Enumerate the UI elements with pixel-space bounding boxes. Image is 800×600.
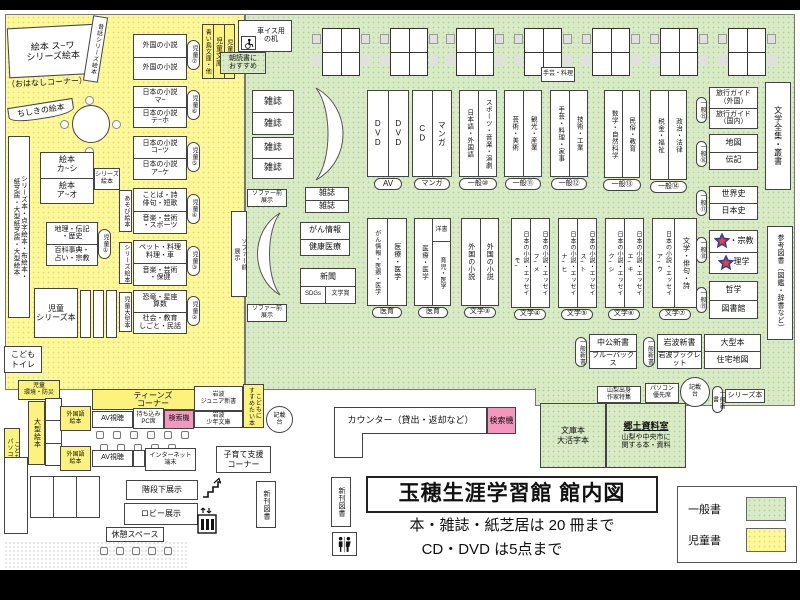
chair (113, 431, 121, 439)
sdgs-label: SDGs (301, 287, 326, 304)
table-cell (53, 477, 76, 517)
sofa-front-display-label: ソファー前 展示 (247, 304, 287, 322)
kids-shelf-jido3: ペット・料理 料理・車 音楽・芸術 ・保健 (133, 240, 187, 286)
counter: カウンター（貸出・返却など） (334, 407, 487, 434)
sofa-front-display-label: ソファー前 展示 (247, 189, 287, 207)
shelf-col: 日本の小説・エッセイ エ~キ (624, 219, 643, 307)
shelf-medical-2: 医療・医学 洋書 育児・医学 (414, 218, 451, 306)
writing-stand: 記載 台 (266, 406, 293, 433)
magazine-shelf: 雑誌 雑誌 (252, 90, 294, 135)
iwanami-shonen-bunko-shelf: 岩波 少年文庫 (194, 411, 243, 428)
chair (147, 431, 155, 439)
literary-prize-label: 文学賞 (326, 287, 355, 304)
ehon-shelf: 絵本 カ~シ 絵本 ア~オ (40, 152, 94, 204)
counter-leg (334, 433, 363, 458)
elevator-icon (197, 507, 219, 534)
shelf-tag: 文学③ (464, 307, 496, 318)
shelf-col: 医療・医学 (387, 219, 407, 305)
iwanami-junior-shinsho-shelf: 岩波 ジュニア新書 (194, 386, 243, 411)
magazine-shelf: 雑誌 雑誌 (305, 187, 349, 213)
shelf-col: スポーツ・音楽・演劇 (478, 91, 497, 176)
kids-shelf-tag: 児童② (187, 296, 200, 326)
shelf-cell (46, 420, 61, 442)
shelf-tag: 文学⑦ (659, 309, 691, 320)
yamanashi-authors-label: 山梨出身 作家特集 (597, 386, 641, 403)
shelf-row: 日本の小説 ア~ケ (134, 158, 186, 180)
shelf-tag: マンガ (414, 178, 450, 190)
shelf-col: 日本語・外国語 (460, 91, 478, 176)
magazine-label: 雑誌 (253, 112, 293, 134)
shelf-col: 日本の小説・エッセイ モ~ (512, 219, 530, 307)
shelf-tag: 医育 (372, 307, 402, 318)
table-cell (31, 477, 53, 517)
crescent-sofa (308, 86, 350, 182)
shelf-row: 岩波ブックレット (658, 351, 701, 368)
av-viewing-label: AV視聴 (92, 411, 133, 428)
kids-shelf-jido5: 日本の小説 コ~ツ 日本の小説 ア~ケ (133, 136, 187, 180)
study-table (728, 28, 766, 76)
foreign-picture-books-label: 外国語 絵本 (60, 406, 91, 431)
magazine-label: 雑誌 (253, 91, 293, 112)
shelf-cd-manga: CD マンガ (412, 90, 452, 177)
shelf-literature-3: 外国の小説 外国の小説 (461, 218, 499, 306)
shelf-col: DVD (368, 91, 388, 176)
kids-series-shelf: 児童 シリーズ本 (34, 288, 78, 338)
shelf-tag: 一般⑱ (696, 237, 707, 263)
lobby-display: ロビー展示 (124, 503, 198, 525)
shelf-tag: 一般新書 (712, 386, 723, 413)
shelf-row: 百科事典・ 占い・宗教 (47, 244, 97, 266)
kids-shelf-jido7: 外国の小説 外国の小説 (133, 34, 187, 80)
western-books-label: 洋書 (433, 219, 450, 242)
shelf-tag: 一般⑭ (650, 181, 687, 193)
shelf-medical-1: がん情報・医療・医学 医療・医学 (367, 218, 407, 306)
star-icon (718, 255, 734, 271)
magazine-label: 雑誌 (253, 158, 293, 179)
health-medical-label: 健康医療 (301, 239, 349, 256)
internet-terminal-label: インターネット 端末 (145, 448, 196, 471)
shelf-history: 世界史 日本史 (709, 186, 758, 220)
new-books-shelf: 新刊図書 (331, 477, 351, 527)
shelf-tag: AV (374, 178, 402, 190)
craft-cooking-note: 手芸・料理 (541, 67, 575, 82)
magazine-label: 雑誌 (253, 138, 293, 158)
shelf-row: 地理・伝記 ・歴史 (47, 223, 97, 244)
shelf-row: 図書館 (710, 300, 757, 319)
shelf-philosophy-library: 哲学 図書館 (709, 281, 758, 319)
shelf-literature-7: 日本の小説・エッセイ ア~ウ 文学・俳句・詩 (652, 218, 697, 308)
newspaper-shelf: 新聞 SDGs 文学賞 (300, 268, 356, 304)
shelf-religion-psychology: ・宗教 理学 (709, 230, 758, 274)
shelf-col: 日本の小説・エッセイ ア~ウ (653, 219, 674, 307)
under-stairs-display: 階段下展示 (126, 480, 198, 500)
shelf-col: 文学・俳句・詩 (674, 219, 696, 307)
shelf-row: 日本の小説 テ~ホ (134, 107, 186, 128)
wheelchair-icon (241, 36, 256, 50)
bottom-black-bar (0, 570, 800, 600)
chair (112, 120, 121, 129)
shelf-iwanami-shinsho: 岩波新書 岩波ブックレット (657, 334, 702, 369)
shelf-col: 民俗・教育 (622, 91, 640, 177)
kids-toilet-label: こども トイレ (4, 346, 42, 373)
shelf-row: ペット・料理 料理・車 (134, 241, 186, 263)
literature-complete-works-wall: 文学全集・叢書 (765, 82, 791, 190)
shelf-cell (46, 443, 61, 465)
shelf-general-13: 数学・自然科学 民俗・教育 (604, 90, 640, 178)
chair (148, 547, 156, 555)
kids-shelf-side-label: あそび絵本 (119, 190, 132, 232)
magazine-shelf: 雑誌 雑誌 (252, 137, 294, 179)
kids-shelf-jido1: 地理・伝記 ・歴史 百科事典・ 占い・宗教 (46, 222, 98, 266)
star-icon (714, 233, 730, 249)
shelf-row-starred: ・宗教 (710, 231, 757, 252)
shelf-row: 地図 (710, 135, 757, 152)
byod-pc-seat-label: 持ち込み PC席 (133, 408, 164, 429)
loan-limit-note: 本・雑誌・紙芝居は 20 冊まで (366, 515, 658, 537)
shelf-col: 日本の小説・エッセイ ナ~ヒ (559, 219, 577, 307)
local-materials-room-desc: 山梨や中央市に 関する本・資料 (622, 434, 671, 450)
map-title: 玉穂生涯学習館 館内図 (366, 476, 658, 513)
shelf-tag: 医育 (418, 307, 448, 318)
shelf-travel-guide: 旅行ガイド （外国） 旅行ガイド （国内） (709, 87, 758, 129)
shelf-row: 恐竜・星座 算数 (134, 291, 186, 312)
stairs-icon (202, 477, 222, 499)
shelf-row: 音楽・芸術 ・保健 (134, 263, 186, 286)
shelf-large-books: 大型本 住宅地図 (704, 334, 761, 369)
search-terminal: 検索機 (164, 410, 194, 429)
shelf-col: 数学・自然科学 (605, 91, 622, 177)
chair (132, 547, 140, 555)
series-ehon-label: シリーズ絵本 (26, 50, 80, 63)
shelf-row: 大型本 (705, 335, 760, 351)
chair (96, 431, 104, 439)
shelf-row: 日本の小説 マ~ (134, 87, 186, 107)
study-table (660, 28, 698, 76)
kids-shelf-tag: 児童① (98, 229, 111, 259)
pc-priority-se at-label: パソコン 優先席 (645, 383, 679, 403)
shelf-row: 日本史 (710, 203, 757, 220)
shelf-cell (46, 399, 61, 420)
shelf-tag: 一般新書 (643, 337, 655, 367)
shelf-row-text: ・宗教 (730, 237, 754, 246)
kids-shelf-tag: 児童⑥ (187, 90, 200, 120)
shelf-col: 観光・産業 (523, 91, 542, 176)
table-cell (76, 477, 99, 517)
series-books-label: シリーズ本 (725, 389, 765, 403)
legend-general-label: 一般書 (688, 501, 721, 517)
chair (116, 547, 124, 555)
study-table (592, 28, 630, 76)
crescent-sofa (248, 211, 286, 297)
chair (130, 431, 138, 439)
shelf-tag: 一般⑬ (603, 179, 641, 191)
kids-shelf-tag: 児童⑤ (187, 142, 200, 172)
shelf-col: 外国の小説 (480, 219, 499, 305)
cd-dvd-limit-note: CD・DVD は5点まで (346, 539, 638, 561)
shelf-row: 世界史 (710, 187, 757, 203)
newspaper-shelf-row2: SDGs 文学賞 (301, 286, 355, 304)
shelf-col: 日本の小説・エッセイ フ~メ (530, 219, 549, 307)
shelf-row: 岩波新書 (658, 335, 701, 351)
cancer-info-shelf: がん情報 健康医療 (300, 222, 350, 256)
kids-shelf-tag: 児童③ (187, 246, 200, 276)
pillar (93, 290, 104, 338)
shelf-col: 政治・法律 (668, 91, 686, 179)
series-ehon-side-label: シリーズ 絵本 (94, 168, 120, 190)
large-picture-books-shelf: 大型絵本 (28, 401, 45, 465)
shelf-col: CD (413, 91, 432, 176)
bunko-large-print-shelf: 文庫本 大活字本 (540, 403, 606, 468)
shelf-row: 旅行ガイド （外国） (710, 88, 757, 108)
shelf-map-biography: 地図 伝記 (709, 134, 758, 170)
shelf-av: DVD DVD (367, 90, 409, 177)
magazine-label: 雑誌 (306, 200, 348, 213)
shelf-row: 住宅地図 (705, 351, 760, 368)
study-table (390, 28, 428, 76)
shelf-col: マンガ (432, 91, 452, 176)
childcare-medical-label: 育児・医学 (433, 242, 450, 305)
magazine-label: 雑誌 (306, 188, 348, 200)
shelf-general-14: 税金・福祉 政治・法律 (650, 90, 687, 180)
study-table (322, 28, 360, 76)
newspaper-label: 新聞 (301, 269, 355, 286)
chair (85, 96, 94, 105)
shelf-tag: 文学⑤ (561, 309, 593, 320)
chair (60, 120, 69, 129)
shelf-row: 哲学 (710, 282, 757, 300)
cancer-info-label: がん情報 (301, 223, 349, 239)
small-cabinet (133, 450, 145, 467)
legend-children-label: 児童書 (688, 532, 721, 548)
pillar (106, 290, 117, 338)
ehon-shelf-row: 絵本 ア~オ (41, 178, 93, 204)
local-materials-room-title: 郷土資料室 (623, 421, 668, 431)
shelf-literature-6: 日本の小説・エッセイ ク~シ 日本の小説・エッセイ エ~キ (605, 218, 644, 308)
shelf-row: 外国の小説 (134, 57, 186, 80)
shelf-col: 手芸・料理・家事 (551, 91, 569, 176)
shelf-chuko-shinsho: 中公新書 ブルーバックス (589, 334, 637, 369)
kids-shelf-tag: 児童⑦ (187, 40, 200, 70)
ehon-shelf-row: 絵本 カ~シ (41, 153, 93, 178)
chair (164, 547, 172, 555)
shelf-tag: 一般新書 (575, 337, 587, 367)
kids-shelf-side-label: シリーズ絵本 (119, 242, 132, 284)
legend: 一般書 児童書 (677, 486, 797, 563)
shelf-row: 外国の小説 (134, 35, 186, 57)
kids-shelf-jido4: ことば・詩 俳句・短歌 音楽・芸術 ・スポーツ (133, 188, 187, 234)
kids-shelf-jido2: 恐竜・星座 算数 社会・教育 しごと・民話 (133, 290, 187, 334)
shelf-row-starred: 理学 (710, 252, 757, 274)
shelf-general-10: 日本語・外国語 スポーツ・音楽・演劇 (459, 90, 497, 177)
kids-shelf-tag: 児童④ (187, 194, 200, 224)
aoitori-bunko-label: 青い鳥文庫・他 (203, 25, 213, 78)
study-table (456, 28, 494, 76)
shelf-row: 日本の小説 コ~ツ (134, 137, 186, 158)
shelf-col: 医療・医学 (415, 219, 432, 305)
search-terminal: 検索機 (487, 407, 516, 434)
pillar (80, 290, 91, 338)
recommended-for-kids-shelf: こどもに すすめたい本 (243, 384, 264, 428)
shelf-row: 旅行ガイド （国内） (710, 108, 757, 129)
shelf-tag: 一般⑪ (505, 178, 541, 190)
top-black-bar (0, 0, 800, 10)
shelf-col: 外国の小説 (462, 219, 480, 305)
shelf-row: 社会・教育 しごと・民話 (134, 312, 186, 334)
shelf-tag: 一般⑯ (696, 141, 707, 167)
legend-row-general: 一般書 (688, 497, 786, 521)
shelf-col-split: 洋書 育児・医学 (432, 219, 450, 305)
asadoku-recommend-label: 朝読書に おすすめ (220, 52, 266, 74)
shelf-row: ブルーバックス (590, 351, 636, 368)
lobby-shelf (4, 457, 28, 534)
shelf-row: 伝記 (710, 152, 757, 170)
kids-round-table (72, 105, 110, 143)
shelf-general-11: 芸術・美術 観光・産業 (504, 90, 542, 177)
shelf-col: 芸術・美術 (505, 91, 523, 176)
shelf-tag: 一般⑫ (551, 178, 587, 190)
left-wall-shelf: シリーズ本・点字絵本・布絵本・ 紙芝居・大型紙芝居・大型絵本 (8, 136, 30, 318)
floor-map: 絵本 ス~ワ シリーズ絵本 （おはなしコーナー） 昔話シリーズ絵本 ちしきの絵本… (0, 0, 800, 600)
shelf-tag: 一般⑰ (696, 190, 707, 216)
childcare-support-corner: 子育て支援 コーナー (216, 446, 271, 473)
chair (181, 431, 189, 439)
shelf-row-text: 理学 (734, 258, 750, 267)
rest-space-area (4, 541, 188, 570)
shelf-literature-4: 日本の小説・エッセイ モ~ 日本の小説・エッセイ フ~メ (511, 218, 550, 308)
legend-children-swatch (746, 528, 786, 552)
legend-general-swatch (746, 497, 786, 521)
shelf-col: がん情報・医療・医学 (368, 219, 387, 305)
foreign-picture-books-label: 外国語 絵本 (60, 446, 91, 471)
shelf-col: 技術・工業 (569, 91, 588, 176)
sofa-front-display-label: ソファー前 展示 (231, 211, 247, 297)
kids-environment-label: 児童 環境・防災 (18, 380, 60, 400)
shelf-tag: 一般⑩ (459, 178, 497, 190)
shelf-tag: 一般⑮ (696, 97, 707, 123)
shelf-tag: 文学④ (514, 309, 546, 320)
local-materials-room: 郷土資料室 山梨や中央市に 関する本・資料 (606, 403, 686, 468)
shelf-col: 日本の小説・エッセイ ス~ト (577, 219, 596, 307)
rest-space-label: 休憩スペース (106, 527, 164, 542)
shelf-row: 中公新書 (590, 335, 636, 351)
shelf-general-12: 手芸・料理・家事 技術・工業 (550, 90, 588, 177)
chair (164, 431, 172, 439)
lobby-table (30, 476, 100, 518)
shelf-col: DVD (388, 91, 409, 176)
kids-shelf-jido6: 日本の小説 マ~ 日本の小説 テ~ホ (133, 86, 187, 128)
new-books-shelf: 新刊図書 (256, 481, 276, 528)
reference-books-wall: 参考図書（図鑑・辞書など） (767, 226, 793, 340)
shelf-col: 日本の小説・エッセイ ク~シ (606, 219, 624, 307)
shelf-row: ことば・詩 俳句・短歌 (134, 189, 186, 211)
shelf-literature-5: 日本の小説・エッセイ ナ~ヒ 日本の小説・エッセイ ス~ト (558, 218, 597, 308)
legend-row-children: 児童書 (688, 528, 786, 552)
shelf-tag: 一般⑲ (696, 287, 707, 313)
shelf-tag: 文学⑥ (608, 309, 640, 320)
chair (100, 547, 108, 555)
av-viewing-label: AV視聴 (92, 450, 133, 467)
kids-shelf-side-label: 児童大型本 (119, 292, 132, 332)
shelf-col: 税金・福祉 (651, 91, 668, 179)
shelf-row: 音楽・芸術 ・スポーツ (134, 211, 186, 234)
